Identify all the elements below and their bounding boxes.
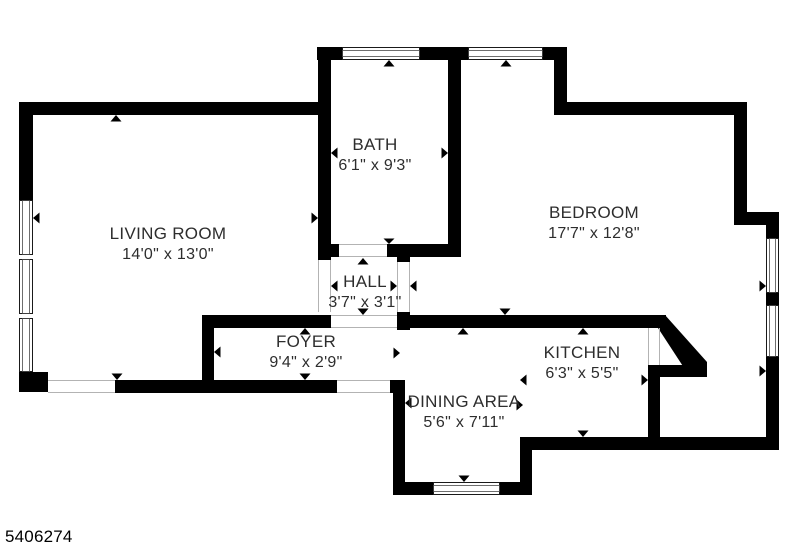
plan-id-number: 5406274 [5, 527, 73, 547]
floor-plan: LIVING ROOM 14'0" x 13'0" BATH 6'1" x 9'… [0, 0, 800, 547]
floor-plan-drawing [0, 0, 800, 547]
exterior-walls [19, 47, 779, 495]
